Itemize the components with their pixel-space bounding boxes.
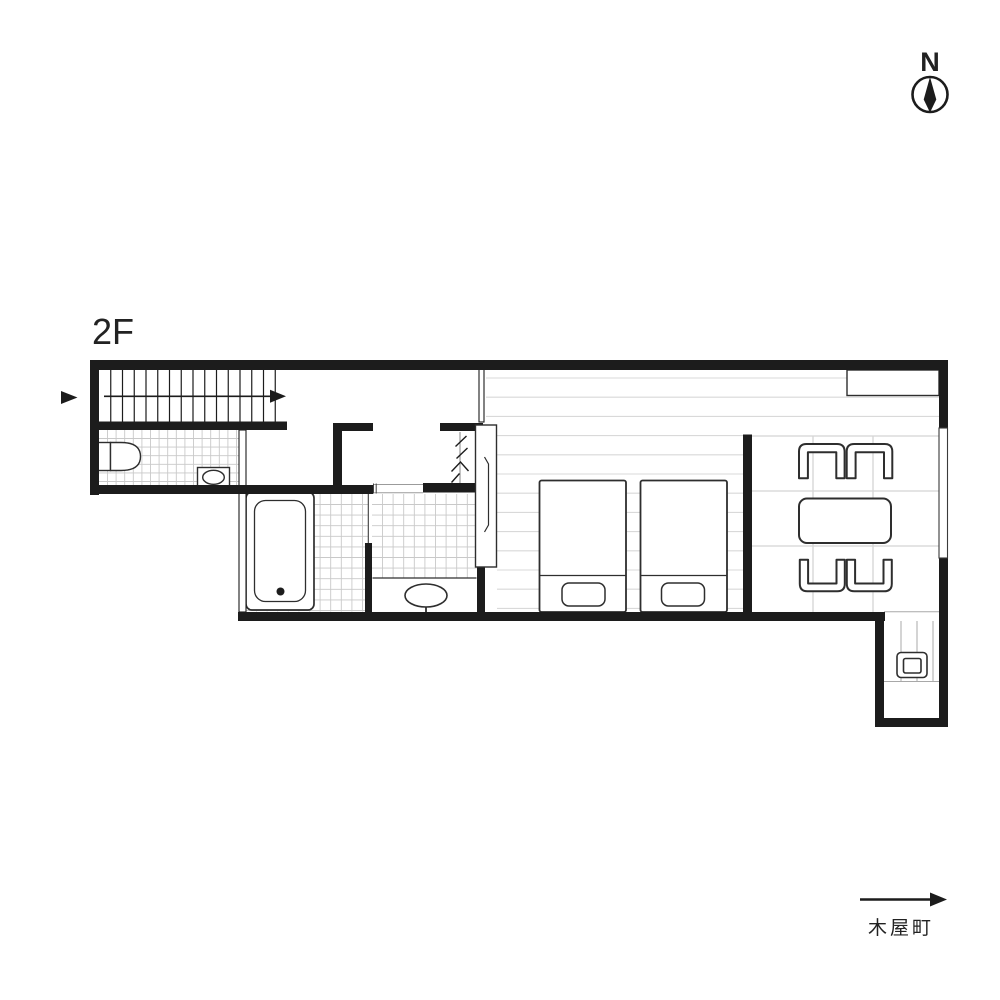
- vanity-sink: [373, 578, 477, 613]
- chair-1: [799, 444, 845, 478]
- sliding-panel: [476, 425, 497, 567]
- wall-stub-bedroom-left: [477, 562, 485, 614]
- floor-plan-page: 2F N 木屋町: [0, 0, 1000, 1000]
- floor-plan-canvas: 2F N 木屋町: [0, 0, 1000, 1000]
- toilet: [98, 443, 141, 471]
- pillow: [562, 583, 605, 606]
- bathtub-drain: [277, 588, 285, 596]
- bed-1: [540, 481, 627, 613]
- wall-dining-partition: [743, 435, 752, 614]
- thin-wall-bedroom: [479, 368, 484, 422]
- counter: [847, 370, 939, 396]
- powder-room-floor: [372, 494, 477, 578]
- chair-2: [847, 444, 893, 478]
- entry-arrow-icon: [61, 391, 78, 404]
- bathtub: [246, 492, 314, 610]
- bed-2: [641, 481, 728, 613]
- compass-icon: N: [913, 47, 948, 113]
- chair-3: [800, 560, 845, 592]
- rear-fixture: [897, 653, 927, 678]
- wall-extension-bottom: [875, 718, 948, 727]
- door-opening: [373, 484, 423, 495]
- floor-label: 2F: [92, 311, 134, 352]
- wall-extension-left: [875, 612, 884, 727]
- folding-door: [452, 432, 469, 483]
- pillow: [662, 583, 705, 606]
- thin-wall-corridor: [239, 430, 246, 612]
- wall-stairs-bottom: [90, 422, 287, 431]
- stairs-direction-arrow-icon: [104, 390, 286, 403]
- wall-toilet-bottom: [90, 485, 373, 494]
- wall-bath-divider: [365, 543, 372, 613]
- dining-table: [799, 499, 891, 544]
- compass-north-label: N: [920, 47, 940, 77]
- wall-top: [90, 360, 948, 370]
- window: [939, 428, 948, 558]
- wall-closet-stub-left: [333, 423, 373, 431]
- wall-closet-left: [333, 423, 342, 487]
- wall-right-upper: [939, 360, 948, 429]
- wall-bottom-main: [238, 612, 885, 621]
- chair-4: [847, 560, 892, 592]
- street-label: 木屋町: [868, 917, 934, 939]
- wall-right-lower: [939, 557, 948, 727]
- wall-powder-top: [423, 483, 481, 493]
- street-arrow-icon: [860, 893, 947, 907]
